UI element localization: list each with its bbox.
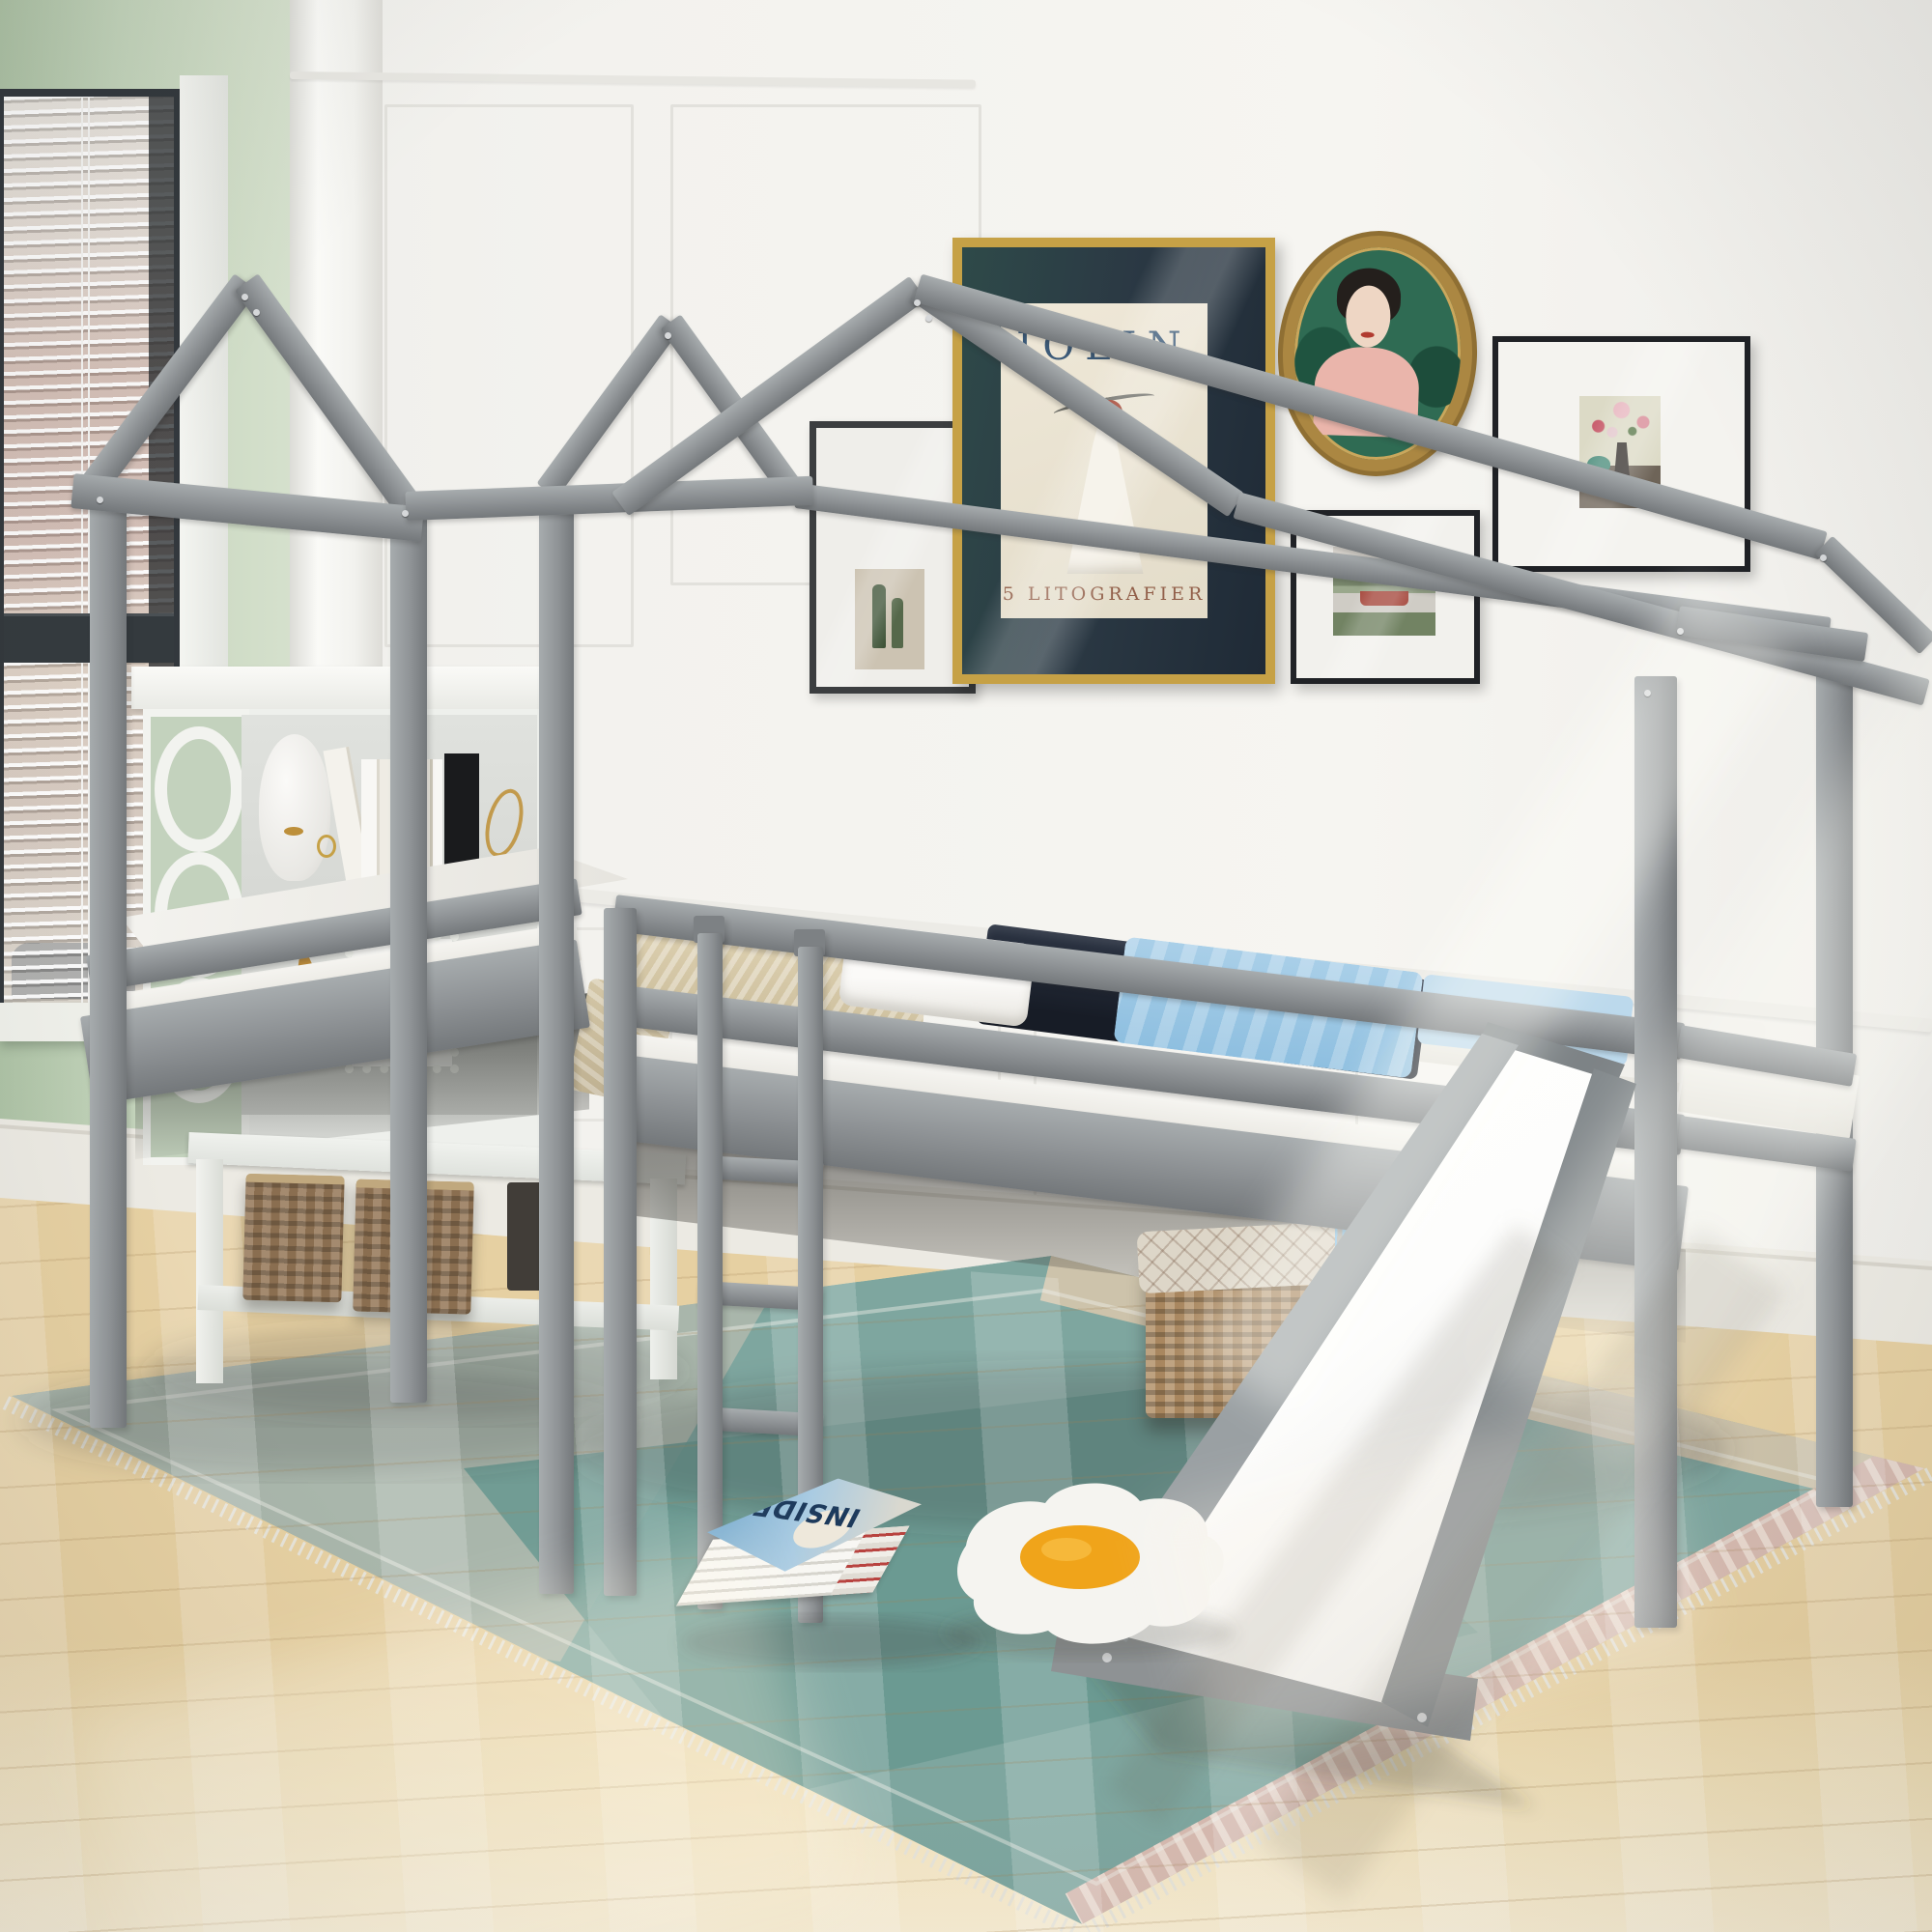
bolt xyxy=(253,309,260,316)
right-house-front-post xyxy=(1634,676,1677,1628)
bench-leg xyxy=(196,1159,223,1383)
mannequin-head xyxy=(259,734,330,881)
plaid-liner xyxy=(1136,1222,1338,1294)
bolt xyxy=(1644,690,1651,696)
bolt xyxy=(402,510,409,517)
magazine-stack[interactable]: INSIDE xyxy=(699,1468,943,1658)
bedroom-scene: JOLIN 5 LITOGRAFIER xyxy=(0,0,1932,1932)
mannequin-lips xyxy=(284,827,303,836)
bookshelf-crown xyxy=(131,667,560,709)
bolt xyxy=(97,497,103,503)
corner-post xyxy=(539,488,574,1594)
under-bed-wicker-basket[interactable] xyxy=(1146,1256,1331,1418)
bolt xyxy=(665,332,671,339)
bolt xyxy=(241,294,248,300)
bolt xyxy=(1820,554,1827,561)
left-house-front-right-post xyxy=(390,495,427,1403)
left-house-front-left-post xyxy=(90,481,127,1428)
mannequin-earring xyxy=(317,835,336,858)
bolt xyxy=(925,315,932,322)
bolt xyxy=(1677,628,1684,635)
right-bed-left-post xyxy=(604,908,637,1596)
fretwork-ring xyxy=(155,726,243,852)
bolt xyxy=(914,299,921,306)
wicker-basket[interactable] xyxy=(242,1174,344,1303)
